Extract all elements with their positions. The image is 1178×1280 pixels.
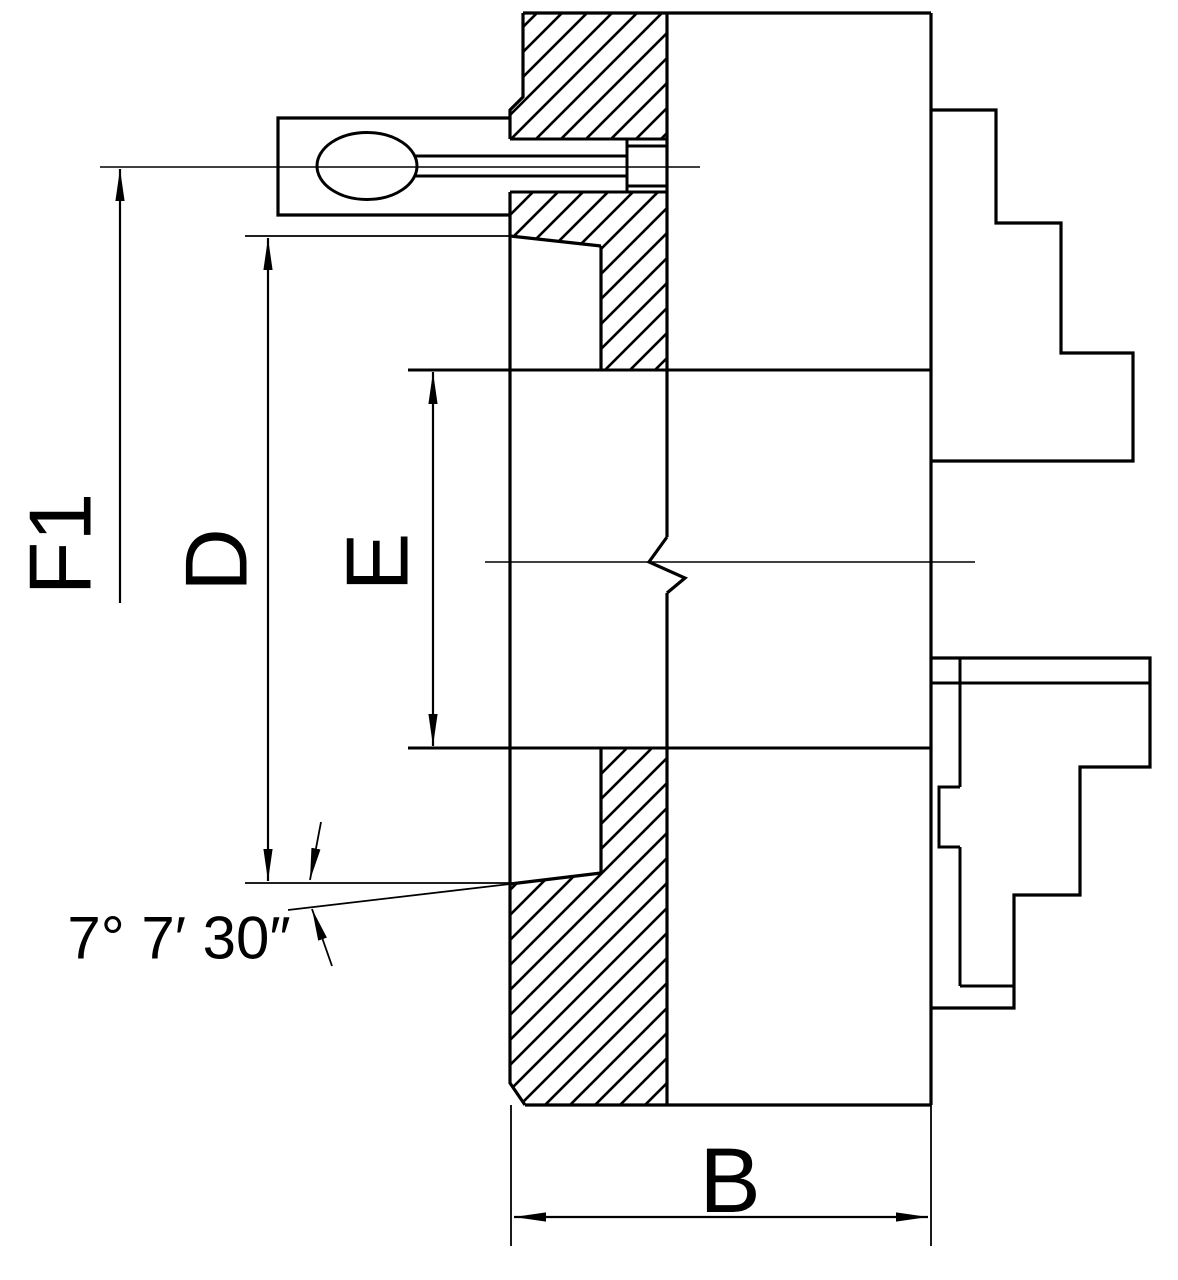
chuck-cross-section-drawing: F1 D E B 7° 7′ 30″ [0,0,1178,1280]
dimension-b: B [511,1105,931,1246]
angle-arrow-lower [312,909,332,966]
angle-arrow-upper [310,822,321,880]
dim-label-taper-angle: 7° 7′ 30″ [67,905,290,972]
dim-label-e: E [328,533,427,592]
dimension-f1: F1 [11,169,121,603]
dim-label-f1: F1 [11,493,110,596]
bottom-jaw [931,658,1150,1008]
top-jaw-outline [931,110,1133,461]
dimension-e: E [328,372,434,746]
bottom-jaw-outline [931,658,1150,1008]
section-boundary-break [649,537,685,593]
dim-label-d: D [167,528,266,592]
drawing-canvas: F1 D E B 7° 7′ 30″ [0,0,1178,1280]
hatch-bottom-flange [510,748,667,1105]
dim-label-b: B [699,1130,760,1232]
top-jaw [931,110,1133,461]
screw-head-ellipse [317,133,417,200]
bottom-jaw-key-notch [939,787,960,847]
dimension-taper-angle: 7° 7′ 30″ [67,822,510,972]
angle-reference-line [288,884,510,910]
